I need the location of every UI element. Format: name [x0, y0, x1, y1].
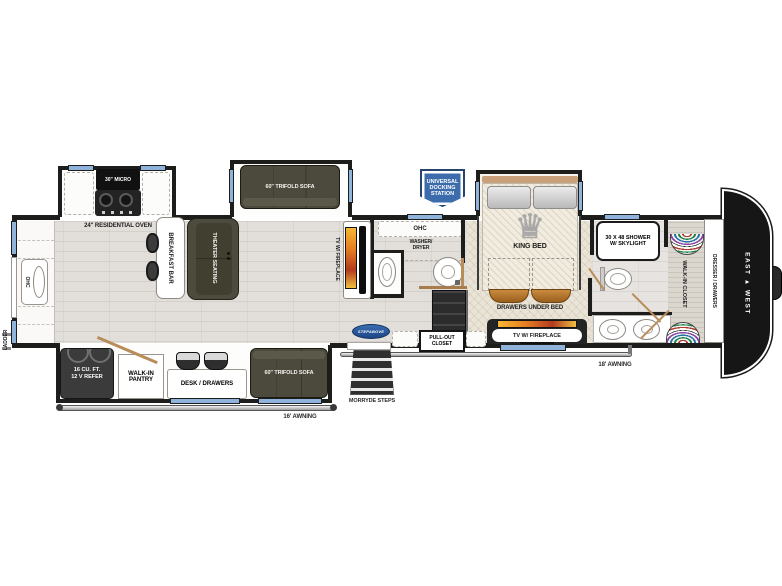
- pullout-closet-line2: CLOSET: [432, 341, 452, 347]
- awning-end-cap: [330, 404, 337, 411]
- underbed-drawer: [531, 289, 571, 303]
- front-cap-logo: EAST ▲ WEST: [742, 249, 751, 319]
- refer-coil: [67, 348, 89, 363]
- rear-baggage-door: [11, 257, 17, 318]
- awning-rail-left: [58, 405, 336, 411]
- bed-window-right: [578, 181, 583, 211]
- faucet: [455, 280, 460, 285]
- window-top-bath: [604, 214, 640, 220]
- bedroom-tv-label-pill: TV W/ FIREPLACE: [492, 329, 582, 342]
- fireplace: [345, 227, 357, 289]
- trifold-sofa-top-label: 60" TRIFOLD SOFA: [241, 166, 339, 208]
- refer-coil: [89, 348, 111, 363]
- drawers-under-bed-label: DRAWERS UNDER BED: [478, 305, 582, 312]
- awning-left-label: 16' AWNING: [268, 414, 332, 421]
- toilet-bowl: [382, 263, 392, 281]
- docking-station-badge: UNIVERSAL DOCKING STATION: [420, 169, 465, 207]
- bottom-wall-1: [14, 343, 60, 348]
- toilet-room-wall-bottom: [370, 294, 404, 298]
- pullout-closet: PULL-OUT CLOSET: [419, 330, 465, 352]
- hall-door: [461, 258, 464, 286]
- awning-right-label: 18' AWNING: [584, 362, 646, 369]
- floorplan-canvas: OHC LADDER 30" MICRO 24" RESIDENTIAL OVE…: [0, 0, 782, 586]
- sofa-slide-wall-top: [230, 160, 352, 164]
- cupholder: [227, 252, 230, 255]
- steps-label: MORRYDE STEPS: [335, 398, 409, 404]
- bottom-wall-2: [330, 343, 347, 348]
- pantry-line2: PANTRY: [129, 377, 153, 383]
- bar-stool: [146, 233, 159, 253]
- counter-seam: [18, 240, 54, 241]
- pillow: [487, 186, 531, 209]
- counter-seam: [18, 306, 54, 307]
- washer-dryer-line2: DRYER: [382, 246, 460, 252]
- bed-rail-left: [477, 216, 479, 290]
- trifold-sofa-top: 60" TRIFOLD SOFA: [240, 165, 340, 209]
- washer-dryer-label: WASHER/ DRYER: [382, 240, 460, 251]
- trifold-sofa-bottom-label: 60" TRIFOLD SOFA: [251, 349, 327, 397]
- desk-stool: [204, 352, 228, 370]
- bed-foot-panel: [532, 258, 574, 291]
- walk-in-closet-label: WALK-IN CLOSET: [680, 251, 688, 317]
- lower-slide-window-right: [258, 398, 322, 404]
- kitchen-slide-wall-left: [58, 166, 62, 217]
- sofa-slide-window-right: [348, 169, 353, 203]
- refer-line1: 16 CU. FT.: [61, 367, 113, 374]
- oven-label: 24" RESIDENTIAL OVEN: [58, 223, 178, 230]
- kitchen-counter-right: [142, 172, 170, 215]
- shower: 30 X 48 SHOWER W/ SKYLIGHT: [596, 221, 660, 261]
- trifold-sofa-bottom: 60" TRIFOLD SOFA: [250, 348, 328, 398]
- refer-line2: 12 V REFER: [61, 374, 113, 381]
- burner: [99, 193, 113, 207]
- kitchen-slide-wall-right: [172, 166, 176, 217]
- lower-slide-window-left: [170, 398, 240, 404]
- awning-arm: [628, 345, 632, 354]
- laundry-ohc-label: OHC: [413, 226, 426, 232]
- underbed-drawer: [489, 289, 529, 303]
- cupholder: [227, 257, 230, 260]
- ladder-label: LADDER: [2, 323, 10, 357]
- crown-icon: ♛: [505, 208, 555, 246]
- laundry-ohc: OHC: [378, 221, 462, 237]
- window-rear-lower: [11, 320, 17, 344]
- entry-ohc-right: [466, 331, 486, 347]
- toilet-bowl: [610, 273, 627, 286]
- microwave-label: 30" MICRO: [105, 177, 131, 183]
- entry-steps: [350, 350, 394, 395]
- microwave: 30" MICRO: [96, 169, 140, 190]
- closet-wall-upper: [664, 215, 668, 247]
- hall-counter-edge: [419, 286, 467, 289]
- bed-window-left: [475, 181, 480, 211]
- living-tv-fireplace-label: TV W/ FIREPLACE: [333, 221, 341, 297]
- desk: DESK / DRAWERS: [167, 369, 247, 399]
- window-top-mid: [407, 214, 443, 220]
- tv: [359, 226, 366, 294]
- bed-foot-panel: [488, 258, 530, 291]
- king-bed-label: KING BED: [495, 243, 565, 251]
- desk-label: DESK / DRAWERS: [181, 381, 233, 387]
- top-wall-1: [14, 215, 60, 220]
- refrigerator: 16 CU. FT. 12 V REFER: [60, 348, 114, 399]
- bedroom-tv-fireplace-label: TV W/ FIREPLACE: [513, 333, 561, 339]
- kitchen-slide-window-right: [140, 165, 166, 171]
- kitchen-slide-window-left: [68, 165, 94, 171]
- bath-toilet: [604, 268, 632, 290]
- range-knobs: [102, 211, 134, 214]
- bath-wall-lower: [588, 278, 592, 316]
- docking-line3: STATION: [431, 191, 454, 197]
- entry-ohc-left: [392, 331, 418, 347]
- awning-end-cap: [56, 404, 63, 411]
- bed-slide-wall-top: [476, 170, 582, 174]
- toilet-room-wall-right: [401, 250, 404, 298]
- bed-rail-right: [579, 216, 581, 290]
- dresser-label: DRESSER / DRAWERS: [710, 249, 718, 313]
- bath-wall-upper: [590, 215, 594, 255]
- breakfast-bar-label: BREAKFAST BAR: [166, 221, 174, 295]
- galley-sink-basin: [33, 266, 45, 298]
- bar-stool: [146, 261, 159, 281]
- entry-door-threshold: [347, 342, 391, 350]
- counter-seam: [18, 324, 54, 325]
- bedroom-fireplace: [497, 320, 577, 328]
- refrigerator-label: 16 CU. FT. 12 V REFER: [61, 367, 113, 380]
- bedroom-window: [500, 344, 566, 351]
- vanity-sink-left: [599, 319, 626, 340]
- sofa-slide-window-left: [229, 169, 234, 203]
- laundry-wall-right: [461, 215, 465, 263]
- lower-slide-wall-right: [328, 345, 332, 403]
- step-above-logo: STEPABOVE: [352, 324, 390, 339]
- top-wall-4: [581, 215, 724, 220]
- burner: [119, 193, 133, 207]
- step-above-logo-text: STEPABOVE: [358, 329, 384, 334]
- shower-label-line2: W/ SKYLIGHT: [610, 241, 646, 247]
- kitchen-counter-left: [64, 172, 94, 215]
- pillow: [533, 186, 577, 209]
- mid-bath-toilet: [378, 257, 396, 287]
- window-rear-upper: [11, 221, 17, 255]
- rear-ohc-label: OHC: [23, 265, 31, 299]
- theater-label: THEATER SEATING: [210, 221, 218, 295]
- headboard: [482, 176, 578, 183]
- desk-stool: [176, 352, 200, 370]
